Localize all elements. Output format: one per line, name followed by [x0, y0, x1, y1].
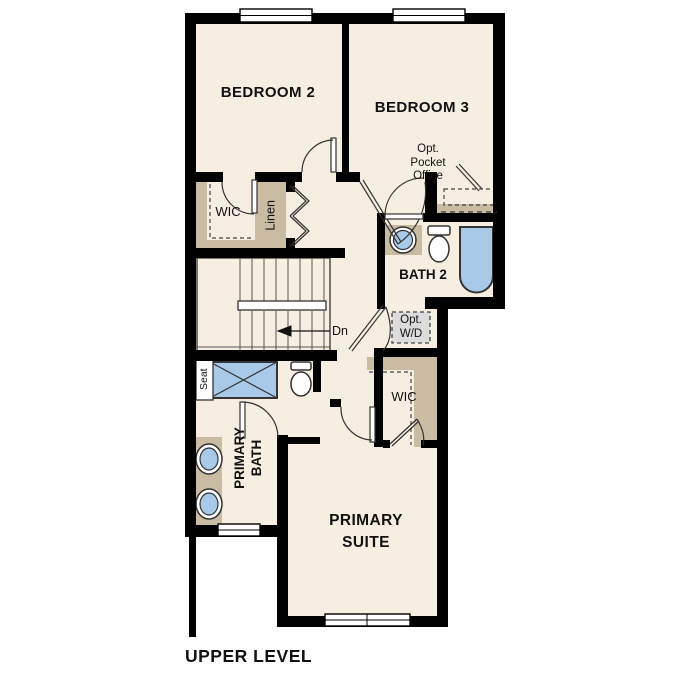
linen-closet	[255, 182, 286, 248]
shower-seat	[196, 360, 213, 400]
wall-exterior-right-upper	[493, 13, 505, 309]
wall-bath2-left	[377, 213, 385, 309]
bathtub	[460, 227, 493, 293]
wall-bath2-top	[423, 213, 505, 222]
primary-suite-floor	[288, 537, 437, 616]
stairs	[197, 258, 330, 351]
washer-dryer-box	[392, 312, 430, 343]
wall-level-below	[189, 537, 196, 637]
window-primary-suite	[325, 614, 410, 626]
primary-toilet	[291, 362, 311, 396]
primary-shower	[196, 360, 277, 400]
floorplan-upper-level: BEDROOM 2 BEDROOM 3 Opt.PocketOffice WIC…	[0, 0, 687, 687]
wall-exterior-right-lower	[437, 297, 448, 627]
window-bedroom3	[393, 9, 465, 22]
wall-exterior-left	[185, 13, 196, 537]
window-primary-bath	[218, 524, 260, 536]
wic-lower-shelf-right	[414, 357, 437, 447]
window-bedroom2	[240, 9, 312, 22]
floorplan-drawing	[0, 0, 687, 687]
wall-bedroom-divider	[342, 24, 349, 172]
bath2-toilet	[428, 226, 450, 262]
stair-handrail	[238, 301, 326, 310]
wall-stairs-top	[196, 248, 345, 258]
